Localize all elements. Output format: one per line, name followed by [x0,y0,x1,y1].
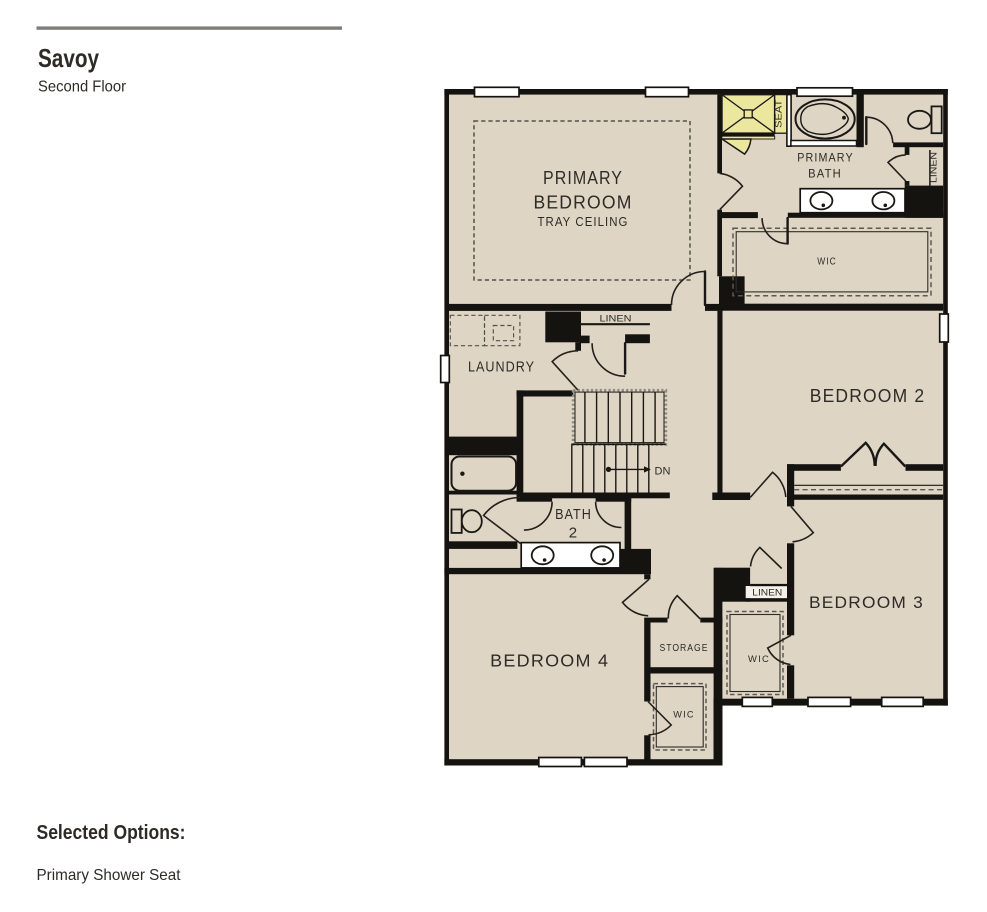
svg-text:PRIMARY: PRIMARY [543,168,623,188]
svg-text:Primary Shower Seat: Primary Shower Seat [37,867,182,884]
svg-text:DN: DN [655,466,671,478]
svg-text:WIC: WIC [748,654,770,664]
svg-text:LAUNDRY: LAUNDRY [468,359,535,376]
svg-text:LINEN: LINEN [929,152,939,183]
svg-text:Second Floor: Second Floor [38,79,127,96]
svg-text:BEDROOM 2: BEDROOM 2 [810,386,926,406]
svg-text:STORAGE: STORAGE [660,642,709,654]
svg-text:WIC: WIC [817,257,837,268]
svg-text:TRAY CEILING: TRAY CEILING [538,214,629,229]
svg-text:2: 2 [569,525,579,542]
svg-text:BEDROOM: BEDROOM [534,192,633,212]
svg-text:SEAT: SEAT [774,99,784,128]
svg-text:BEDROOM 3: BEDROOM 3 [809,593,924,612]
svg-text:PRIMARY: PRIMARY [797,153,854,165]
svg-text:LINEN: LINEN [752,588,782,598]
svg-text:BATH: BATH [555,506,592,523]
svg-text:LINEN: LINEN [600,314,632,324]
svg-text:WIC: WIC [673,710,695,720]
svg-text:BATH: BATH [808,168,842,180]
svg-text:Savoy: Savoy [38,43,99,73]
svg-text:Selected Options:: Selected Options: [37,821,186,844]
svg-text:BEDROOM 4: BEDROOM 4 [490,651,609,671]
